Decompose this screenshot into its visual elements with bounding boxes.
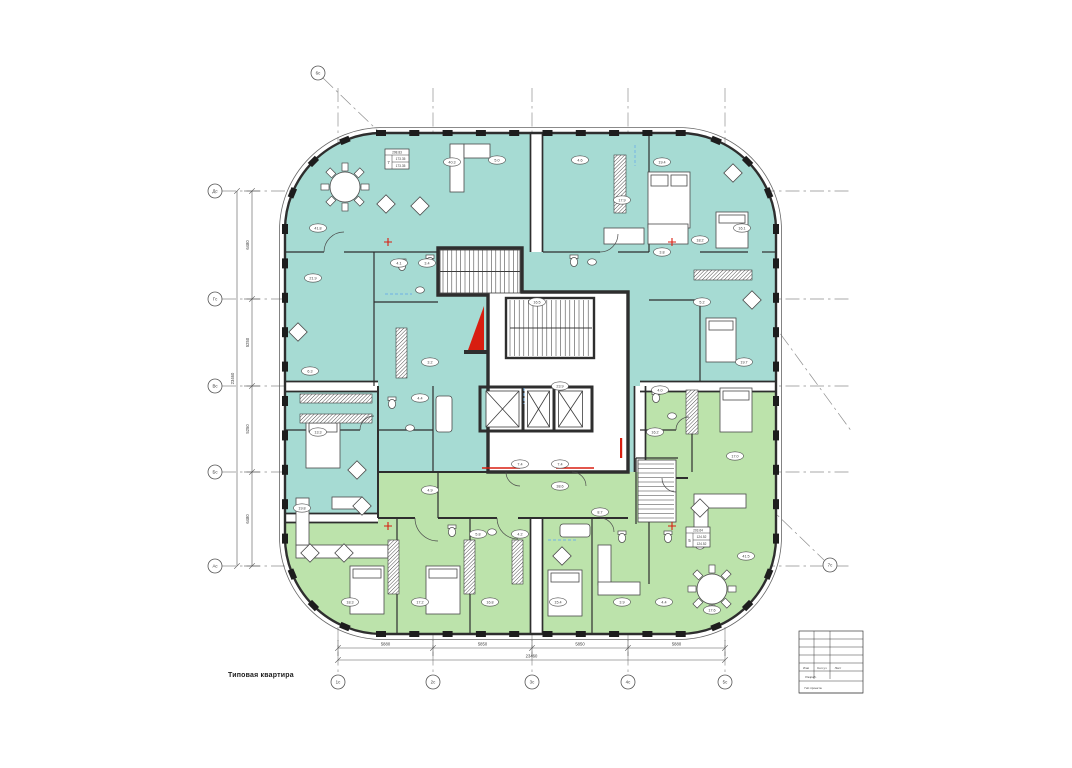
room-area-label: 7.4	[552, 460, 569, 468]
elevator-2	[528, 391, 550, 427]
chair	[321, 184, 329, 190]
room-area-label: 19.8	[294, 504, 311, 512]
axis-bubble: 5с	[718, 675, 732, 689]
axis-bubble-label: 6с	[316, 71, 321, 76]
axis-bubble: Вс	[208, 379, 222, 393]
room-area-value: 4.0	[657, 388, 662, 392]
stamp-area-1: 173.35	[396, 157, 406, 161]
dim-value: 5250	[245, 337, 250, 347]
axis-bubble-label: Дс	[212, 189, 218, 194]
chair	[361, 184, 369, 190]
axis-bubble-label: 4с	[626, 680, 631, 685]
dim-value: 5880	[672, 642, 682, 647]
facade-column	[509, 130, 519, 136]
room-area-value: 17.9	[618, 198, 625, 202]
facade-column	[773, 327, 779, 337]
room-area-value: 17.2	[416, 600, 423, 604]
room-area-value: 40.3	[448, 160, 455, 164]
room-area-value: 3.8	[659, 250, 664, 254]
axis-bubble: Бс	[208, 465, 222, 479]
facade-column	[773, 465, 779, 475]
title-row-signed: Разраб.	[805, 675, 816, 679]
chair	[728, 586, 736, 592]
title-header-cell: Кол.уч	[817, 666, 827, 670]
toilet	[570, 255, 578, 267]
bathtub	[436, 396, 452, 432]
sink	[416, 287, 425, 293]
axis-bubble-label: Вс	[212, 384, 218, 389]
elevators	[486, 391, 583, 427]
bed	[426, 566, 460, 614]
room-area-value: 4.4	[417, 396, 422, 400]
facade-column	[282, 430, 288, 440]
room-area-label: 40.3	[444, 158, 461, 166]
facade-column	[443, 631, 453, 637]
room-area-value: 18.2	[696, 238, 703, 242]
facade-column	[282, 499, 288, 509]
facade-column	[543, 631, 553, 637]
room-area-value: 5.8	[475, 532, 480, 536]
room-area-label: 4.6	[572, 156, 589, 164]
chair	[709, 565, 715, 573]
drawing-sheet: 5880585058505880234606480525052506480234…	[0, 0, 1072, 768]
axis-bubble-label: 3с	[530, 680, 535, 685]
apartment-stamp: 298.837173.35173.35	[385, 149, 409, 169]
room-area-value: 4.9	[427, 488, 432, 492]
facade-column	[282, 396, 288, 406]
room-area-value: 3.4	[424, 261, 429, 265]
bed	[350, 566, 384, 614]
sink	[668, 413, 677, 419]
room-area-value: 38.6	[556, 484, 563, 488]
facade-column	[576, 130, 586, 136]
room-area-label: 7.4	[512, 460, 529, 468]
facade-column	[476, 130, 486, 136]
room-area-label: 4.2	[512, 530, 529, 538]
room-area-label: 41.8	[310, 224, 327, 232]
facade-column	[376, 130, 386, 136]
room-area-label: 17.2	[412, 598, 429, 606]
room-area-value: 19.4	[658, 160, 665, 164]
title-block-frame	[799, 631, 863, 693]
dim-value: 5880	[381, 642, 391, 647]
room-area-value: 16.2	[651, 430, 658, 434]
toilet	[618, 531, 626, 543]
facade-column	[282, 534, 288, 544]
room-area-label: 17.9	[614, 196, 631, 204]
room-area-label: 16.2	[647, 428, 664, 436]
room-area-value: 4.6	[577, 158, 582, 162]
dim-value: 23460	[526, 654, 538, 659]
room-area-label: 3.2	[422, 358, 439, 366]
room-area-label: 17.6	[704, 606, 721, 614]
axis-bubble-label: 7с	[828, 563, 833, 568]
room-area-value: 4.4	[661, 600, 666, 604]
facade-column	[642, 631, 652, 637]
elevator-1	[486, 391, 519, 427]
room-area-value: 7.4	[557, 462, 562, 466]
axis-bubble: Ас	[208, 559, 222, 573]
facade-column	[773, 534, 779, 544]
facade-column	[282, 465, 288, 475]
dining-table-round	[321, 163, 369, 211]
bed	[648, 172, 690, 228]
room-area-label: 5.0	[489, 156, 506, 164]
table-top	[697, 574, 727, 604]
sink	[488, 529, 497, 535]
axis-bubble-label: 2с	[431, 680, 436, 685]
facade-column	[773, 224, 779, 234]
room-area-label: 38.6	[552, 482, 569, 490]
room-area-label: 4.9	[422, 486, 439, 494]
dining-table	[648, 224, 688, 244]
dim-value: 5850	[478, 642, 488, 647]
bed	[306, 420, 340, 468]
axis-bubble: 3с	[525, 675, 539, 689]
toilet	[388, 397, 396, 409]
axis-bubble-label: Бс	[212, 470, 218, 475]
room-area-value: 3.2	[427, 360, 432, 364]
sink	[588, 259, 597, 265]
dim-value: 6480	[245, 240, 250, 250]
room-area-label: 18.3	[342, 598, 359, 606]
facade-column	[676, 130, 686, 136]
room-area-value: 5.0	[494, 158, 499, 162]
chair	[342, 203, 348, 211]
elevator-3	[559, 391, 583, 427]
facade-column	[773, 499, 779, 509]
axis-bubble: 6с	[311, 66, 325, 80]
room-area-value: 21.9	[309, 276, 316, 280]
room-area-label: 4.0	[652, 386, 669, 394]
stamp-area-total: 298.83	[392, 151, 402, 155]
room-area-value: 4.2	[517, 532, 522, 536]
room-area-label: 17.0	[727, 452, 744, 460]
room-area-value: 41.8	[314, 226, 321, 230]
bathtub	[560, 524, 590, 537]
dim-value: 5850	[575, 642, 585, 647]
axis-bubble: 4с	[621, 675, 635, 689]
room-area-label: 15.4	[550, 598, 567, 606]
facade-column	[376, 631, 386, 637]
room-area-value: 17.0	[731, 454, 738, 458]
facade-column	[443, 130, 453, 136]
title-header-cell: Изм	[803, 666, 809, 670]
axis-bubble: Гс	[208, 292, 222, 306]
facade-column	[642, 130, 652, 136]
stamp-area-2: 124.52	[697, 542, 707, 546]
room-area-label: 16.1	[734, 224, 751, 232]
axis-bubble: 2с	[426, 675, 440, 689]
room-area-value: 19.8	[298, 506, 305, 510]
axis-bubble: Дс	[208, 184, 222, 198]
chair	[688, 586, 696, 592]
room-area-label: 16.8	[482, 598, 499, 606]
facade-column	[773, 430, 779, 440]
room-area-label: 16.5	[529, 298, 546, 306]
facade-column	[282, 224, 288, 234]
stamp-area-1: 124.52	[697, 535, 707, 539]
room-area-value: 3.9	[619, 600, 624, 604]
floor-plan-svg: 5880585058505880234606480525052506480234…	[0, 0, 1072, 768]
facade-column	[773, 362, 779, 372]
axis-bubble: 7с	[823, 558, 837, 572]
room-area-label: 18.2	[692, 236, 709, 244]
room-area-value: 16.5	[533, 300, 540, 304]
axis-bubble-label: Гс	[213, 297, 218, 302]
facade-column	[773, 258, 779, 268]
room-area-label: 4.4	[412, 394, 429, 402]
facade-column	[576, 631, 586, 637]
room-area-value: 15.4	[554, 600, 561, 604]
drawing-note: Типовая квартира	[228, 672, 294, 679]
stair-upper	[440, 250, 520, 293]
toilet	[664, 531, 672, 543]
room-area-label: 5.8	[470, 530, 487, 538]
dim-value: 23460	[230, 372, 235, 384]
dim-value: 5250	[245, 424, 250, 434]
axis-bubble-label: 5с	[723, 680, 728, 685]
chair	[342, 163, 348, 171]
title-header-cell: Лист	[835, 666, 842, 670]
dim-value: 6480	[245, 514, 250, 524]
room-area-label: 6.3	[302, 367, 319, 375]
room-area-value: 8.7	[597, 510, 602, 514]
room-area-value: 17.6	[708, 608, 715, 612]
facade-column	[282, 258, 288, 268]
facade-column	[476, 631, 486, 637]
bed	[706, 318, 736, 362]
axis-bubble: 1с	[331, 675, 345, 689]
room-area-value: 4.1	[396, 261, 401, 265]
facade-column	[609, 631, 619, 637]
sink	[406, 425, 415, 431]
axis-bubble-label: 1с	[336, 680, 341, 685]
room-area-label: 3.9	[614, 598, 631, 606]
room-area-label: 19.4	[654, 158, 671, 166]
room-area-value: 18.3	[346, 600, 353, 604]
room-area-label: 8.7	[592, 508, 609, 516]
stamp-area-2: 173.35	[396, 164, 406, 168]
room-area-label: 19.7	[736, 358, 753, 366]
facade-column	[409, 130, 419, 136]
room-area-label: 5.2	[694, 298, 711, 306]
room-area-label: 4.1	[391, 259, 408, 267]
facade-column	[282, 362, 288, 372]
room-area-value: 5.2	[699, 300, 704, 304]
room-area-label: 3.8	[654, 248, 671, 256]
facade-column	[282, 327, 288, 337]
facade-column	[543, 130, 553, 136]
room-area-value: 41.5	[742, 554, 749, 558]
room-area-label: 23.9	[552, 382, 569, 390]
sofa	[604, 228, 644, 244]
facade-column	[773, 396, 779, 406]
room-area-value: 23.9	[556, 384, 563, 388]
facade-column	[609, 130, 619, 136]
room-area-label: 3.4	[419, 259, 436, 267]
facade-column	[773, 293, 779, 303]
facade-column	[509, 631, 519, 637]
room-area-label: 21.9	[305, 274, 322, 282]
room-area-label: 41.5	[738, 552, 755, 560]
bed	[720, 388, 752, 432]
room-area-value: 16.8	[486, 600, 493, 604]
apartment-stamp: 203.645124.52124.52	[686, 527, 710, 547]
room-area-value: 16.1	[738, 226, 745, 230]
title-block: ИзмКол.учЛистРазраб.Гип проекта	[799, 631, 863, 693]
facade-column	[409, 631, 419, 637]
room-area-label: 13.3	[310, 428, 327, 436]
facade-column	[282, 293, 288, 303]
toilet	[448, 525, 456, 537]
room-area-value: 7.4	[517, 462, 522, 466]
title-row-chief: Гип проекта	[804, 686, 821, 690]
room-area-label: 4.4	[656, 598, 673, 606]
table-top	[330, 172, 360, 202]
room-area-value: 19.7	[740, 360, 747, 364]
facade-column	[676, 631, 686, 637]
stamp-area-total: 203.64	[693, 529, 703, 533]
axis-bubble-label: Ас	[212, 564, 218, 569]
bed	[548, 570, 582, 616]
room-area-value: 6.3	[307, 369, 312, 373]
room-area-value: 13.3	[314, 430, 321, 434]
